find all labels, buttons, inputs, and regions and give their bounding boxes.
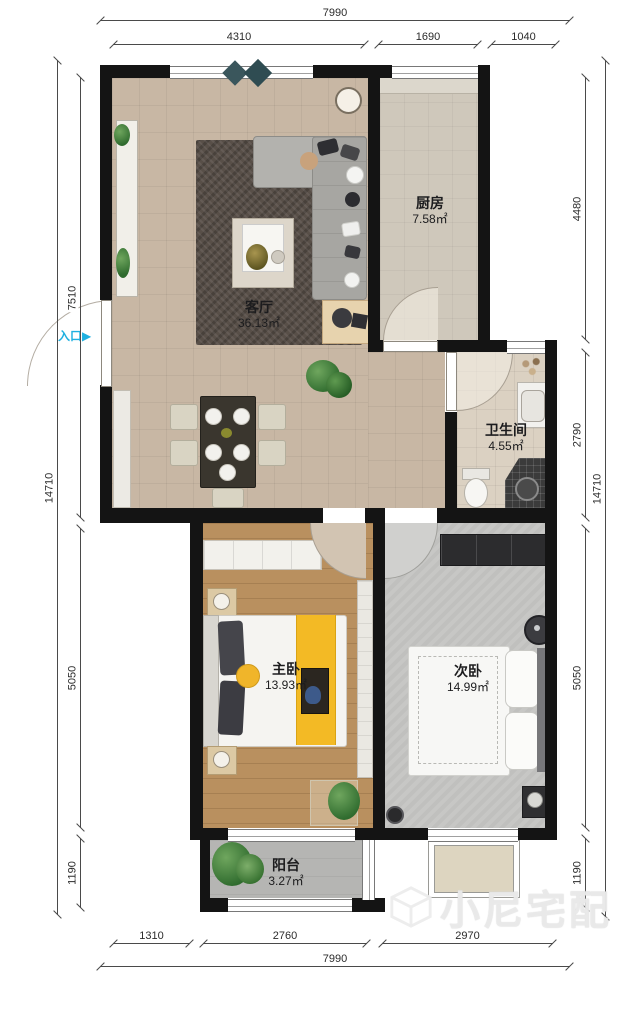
wall bbox=[437, 340, 507, 352]
table-plant-icon bbox=[246, 244, 268, 270]
living-plant2-icon bbox=[326, 372, 352, 398]
kitchen-window bbox=[392, 66, 478, 79]
entrance-door-leaf bbox=[101, 300, 112, 387]
dim-bottom-seg2: 2760 bbox=[203, 943, 367, 944]
master-bedroom-label: 主卧 13.93㎡ bbox=[246, 660, 326, 694]
desk-item bbox=[351, 313, 368, 329]
toilet-bowl bbox=[464, 478, 488, 508]
dim-label: 7990 bbox=[321, 954, 349, 965]
table-bowl bbox=[271, 250, 285, 264]
shower-drain bbox=[515, 477, 539, 501]
wall bbox=[313, 65, 392, 78]
dining-chair bbox=[170, 440, 198, 466]
dining-chair bbox=[170, 404, 198, 430]
room-area: 4.55㎡ bbox=[466, 439, 546, 455]
dining-chair bbox=[258, 404, 286, 430]
table-centerpiece bbox=[221, 428, 232, 438]
room-area: 36.13㎡ bbox=[219, 316, 299, 332]
wall bbox=[355, 828, 385, 840]
sofa-pillow-round2 bbox=[344, 272, 360, 288]
bath-vanity-items bbox=[518, 355, 544, 377]
dim-top-seg3: 1040 bbox=[491, 44, 556, 45]
ceiling-lamp bbox=[335, 87, 362, 114]
dim-label: 1310 bbox=[137, 931, 165, 942]
room-name: 主卧 bbox=[246, 660, 326, 678]
bay-window-top bbox=[428, 829, 518, 842]
wall bbox=[190, 828, 228, 840]
bathroom-door-leaf bbox=[446, 352, 457, 411]
dim-label: 14710 bbox=[45, 470, 56, 505]
second-pillow2 bbox=[505, 712, 539, 770]
wall bbox=[368, 340, 383, 352]
sofa-pillow-round bbox=[346, 166, 364, 184]
dim-label: 14710 bbox=[593, 471, 604, 506]
second-wardrobe bbox=[440, 534, 548, 566]
console-plant2-icon bbox=[116, 248, 130, 278]
balcony-label: 阳台 3.27㎡ bbox=[246, 856, 326, 890]
second-headboard bbox=[537, 648, 545, 772]
floor-plan: 客厅 36.13㎡ 厨房 7.58㎡ 卫生间 4.55㎡ 主卧 13.93㎡ 次… bbox=[0, 0, 640, 1009]
dim-right-seg2: 2790 bbox=[585, 352, 586, 518]
plate bbox=[219, 464, 236, 481]
dim-left-seg3: 1190 bbox=[80, 838, 81, 908]
dim-label: 2760 bbox=[271, 931, 299, 942]
nightstand-lamp bbox=[213, 593, 230, 610]
master-wardrobe bbox=[203, 540, 322, 570]
kitchen-counter bbox=[380, 78, 478, 94]
dim-label: 5050 bbox=[573, 664, 584, 692]
living-room-label: 客厅 36.13㎡ bbox=[219, 298, 299, 332]
console-plant-icon bbox=[114, 124, 130, 146]
wall bbox=[445, 412, 457, 520]
second-lamp bbox=[527, 792, 543, 808]
dining-chair bbox=[258, 440, 286, 466]
hallway-floor bbox=[368, 352, 445, 508]
dining-chair bbox=[212, 488, 244, 508]
balcony-side-window bbox=[362, 840, 375, 900]
dim-top-seg2: 1690 bbox=[378, 44, 478, 45]
room-name: 卫生间 bbox=[466, 421, 546, 439]
desk-chair bbox=[332, 308, 352, 328]
wall bbox=[200, 898, 228, 912]
dim-label: 5050 bbox=[68, 664, 79, 692]
dim-label: 1690 bbox=[414, 32, 442, 43]
dim-label: 4480 bbox=[573, 194, 584, 222]
room-name: 客厅 bbox=[219, 298, 299, 316]
dim-bottom-overall: 7990 bbox=[100, 966, 570, 967]
room-name: 阳台 bbox=[246, 856, 326, 874]
watermark: 小尼宅配 bbox=[388, 878, 612, 936]
dim-left-overall: 14710 bbox=[57, 60, 58, 915]
plate bbox=[205, 408, 222, 425]
wall bbox=[545, 520, 557, 840]
dim-top-seg1: 4310 bbox=[113, 44, 365, 45]
bathroom-label: 卫生间 4.55㎡ bbox=[466, 421, 546, 455]
dim-right-overall: 14710 bbox=[605, 60, 606, 917]
room-name: 次卧 bbox=[428, 662, 508, 680]
watermark-cube-icon bbox=[388, 884, 434, 930]
dim-label: 1040 bbox=[509, 32, 537, 43]
master-pillow2 bbox=[218, 680, 246, 735]
plate bbox=[233, 444, 250, 461]
wall bbox=[100, 65, 112, 300]
dim-label: 1190 bbox=[68, 859, 79, 887]
second-bedroom-label: 次卧 14.99㎡ bbox=[428, 662, 508, 696]
dim-left-seg1: 7510 bbox=[80, 77, 81, 518]
second-pillow bbox=[505, 650, 539, 708]
wall bbox=[545, 340, 557, 520]
wall bbox=[478, 65, 490, 352]
room-name: 厨房 bbox=[390, 194, 470, 212]
floor-dot bbox=[386, 806, 404, 824]
fan-center bbox=[534, 625, 540, 631]
sofa-cushion-tan bbox=[300, 152, 318, 170]
room-area: 14.99㎡ bbox=[428, 680, 508, 696]
master-headboard bbox=[203, 615, 219, 747]
bath-sink-basin bbox=[521, 390, 545, 422]
dim-left-seg2: 5050 bbox=[80, 528, 81, 828]
entrance-arrow-icon: ▶ bbox=[82, 329, 91, 343]
dim-bottom-seg3: 2970 bbox=[382, 943, 553, 944]
dim-label: 7990 bbox=[321, 8, 349, 19]
dim-label: 4310 bbox=[225, 32, 253, 43]
room-area: 7.58㎡ bbox=[390, 212, 470, 228]
wall bbox=[352, 898, 385, 912]
balcony-front-window bbox=[228, 899, 352, 912]
dim-bottom-seg1: 1310 bbox=[113, 943, 190, 944]
dim-right-seg1: 4480 bbox=[585, 77, 586, 340]
dim-top-overall: 7990 bbox=[100, 20, 570, 21]
master-shelf bbox=[357, 580, 373, 778]
wall bbox=[385, 828, 428, 840]
wall bbox=[373, 523, 385, 840]
wall bbox=[437, 508, 557, 523]
entrance-label: 入口▶ bbox=[58, 327, 91, 344]
sofa-pillow-white bbox=[341, 221, 361, 238]
wall bbox=[518, 828, 557, 840]
kitchen-door-leaf bbox=[383, 341, 438, 352]
kitchen-label: 厨房 7.58㎡ bbox=[390, 194, 470, 228]
dim-label: 2790 bbox=[573, 421, 584, 449]
balcony-slider-window bbox=[228, 829, 355, 842]
master-plant-icon bbox=[328, 782, 360, 820]
wall bbox=[100, 385, 112, 520]
entrance-text: 入口 bbox=[58, 329, 82, 343]
plate bbox=[233, 408, 250, 425]
dim-right-seg3: 5050 bbox=[585, 528, 586, 828]
plate bbox=[205, 444, 222, 461]
watermark-text: 小尼宅配 bbox=[440, 878, 612, 936]
shoe-cabinet bbox=[113, 390, 131, 508]
sofa-pillow-dark3 bbox=[345, 192, 360, 207]
wall bbox=[365, 508, 385, 523]
room-area: 3.27㎡ bbox=[246, 874, 326, 890]
room-area: 13.93㎡ bbox=[246, 678, 326, 694]
nightstand-lamp2 bbox=[213, 751, 230, 768]
bathroom-window bbox=[507, 341, 545, 354]
dim-label: 7510 bbox=[68, 283, 79, 311]
wall bbox=[368, 65, 380, 352]
wall bbox=[190, 508, 203, 840]
wall bbox=[100, 508, 323, 523]
